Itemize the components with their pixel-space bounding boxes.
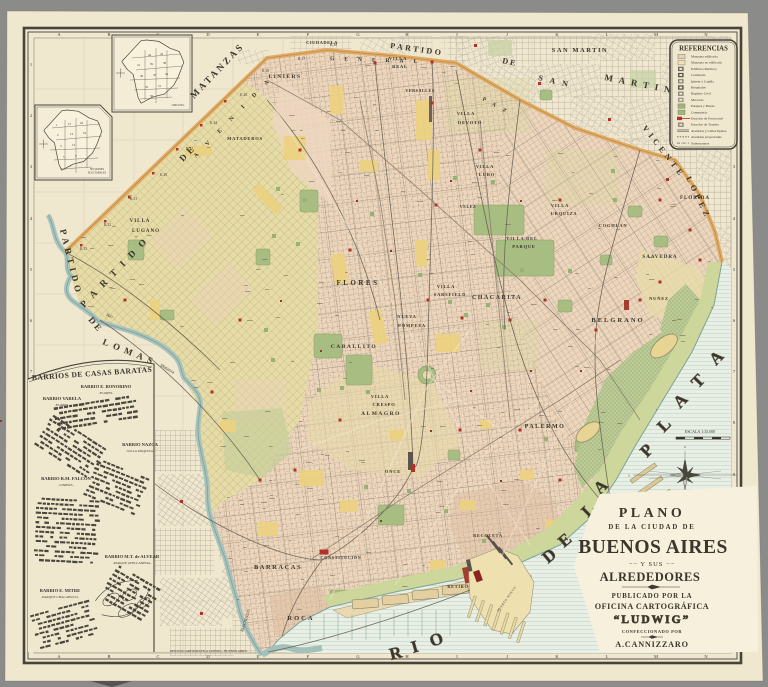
svg-text:VILLA: VILLA — [389, 56, 407, 61]
svg-text:-VILLA URQUIZA-: -VILLA URQUIZA- — [126, 449, 154, 453]
svg-text:C: C — [156, 654, 159, 659]
svg-text:VERSALLES: VERSALLES — [405, 88, 434, 93]
svg-text:K.33: K.33 — [80, 247, 87, 251]
svg-text:BARRIO E. MITRE: BARRIO E. MITRE — [40, 588, 80, 593]
svg-text:COGHLAN: COGHLAN — [599, 223, 628, 228]
svg-text:1: 1 — [30, 62, 32, 67]
svg-text:n: n — [740, 474, 742, 478]
svg-text:REAL: REAL — [392, 64, 408, 69]
svg-text:LINIERS: LINIERS — [268, 74, 301, 80]
svg-text:ELECTORALES: ELECTORALES — [88, 172, 107, 175]
svg-text:36: 36 — [140, 74, 144, 78]
svg-text:ALMAGRO: ALMAGRO — [361, 411, 401, 417]
svg-text:K.32: K.32 — [104, 223, 111, 227]
svg-text:18: 18 — [80, 121, 84, 125]
svg-text:CHACARITA: CHACARITA — [472, 295, 522, 301]
svg-text:VILLA: VILLA — [437, 284, 455, 289]
svg-text:PALERMO: PALERMO — [525, 424, 566, 430]
svg-text:44: 44 — [148, 53, 152, 57]
svg-text:MATADEROS: MATADEROS — [227, 136, 263, 141]
svg-text:Cementerio: Cementerio — [691, 110, 708, 114]
svg-text:FLORES: FLORES — [336, 279, 379, 287]
svg-text:VILLA: VILLA — [551, 203, 569, 208]
svg-text:A.CANNIZZARO: A.CANNIZZARO — [615, 640, 689, 649]
svg-text:VILLA: VILLA — [371, 394, 389, 399]
svg-text:CIRCUNS.: CIRCUNS. — [172, 104, 185, 107]
svg-text:PARQUE: PARQUE — [512, 244, 535, 249]
svg-text:Avenidas proyectadas: Avenidas proyectadas — [691, 135, 722, 139]
svg-text:19: 19 — [83, 131, 87, 135]
svg-text:41: 41 — [137, 63, 141, 67]
svg-text:BARRIO NAZCA: BARRIO NAZCA — [122, 442, 159, 447]
svg-text:Edificios Publicos: Edificios Publicos — [691, 67, 717, 71]
svg-text:34: 34 — [165, 72, 169, 76]
svg-text:Estacion de Tranvia: Estacion de Tranvia — [691, 123, 719, 127]
svg-text:DEVOTO: DEVOTO — [458, 120, 482, 125]
svg-text:K.24: K.24 — [210, 121, 217, 125]
svg-text:M: M — [654, 654, 658, 659]
svg-text:Parques y Plazas: Parques y Plazas — [691, 104, 715, 108]
svg-text:BARRIO M.T. de ALVEAR: BARRIO M.T. de ALVEAR — [105, 554, 160, 559]
svg-text:VILLA DEL: VILLA DEL — [506, 236, 538, 241]
svg-text:-LINIERS-: -LINIERS- — [58, 483, 73, 487]
svg-text:15: 15 — [68, 122, 72, 126]
svg-text:Manzana edificada: Manzana edificada — [691, 55, 718, 59]
svg-text:PLANO: PLANO — [619, 506, 686, 521]
svg-text:39: 39 — [150, 62, 154, 66]
svg-text:OFICINA CARTOGRÁFICA: OFICINA CARTOGRÁFICA — [595, 601, 709, 611]
svg-text:ESCALA 1:35.000: ESCALA 1:35.000 — [685, 429, 715, 434]
svg-text:2: 2 — [30, 113, 32, 118]
svg-text:VILLA: VILLA — [130, 219, 151, 224]
svg-text:30: 30 — [150, 94, 154, 98]
svg-text:DE LA CIUDAD DE: DE LA CIUDAD DE — [608, 524, 695, 531]
svg-text:E: E — [257, 32, 260, 37]
svg-text:RETIRO: RETIRO — [447, 584, 468, 589]
svg-text:“LUDWIG”: “LUDWIG” — [614, 614, 691, 626]
svg-text:RECOLETA: RECOLETA — [473, 533, 503, 538]
svg-text:NUÑEZ: NUÑEZ — [649, 296, 669, 301]
svg-text:REFERENCIAS: REFERENCIAS — [679, 46, 728, 53]
svg-text:Estacion de Ferrocarril: Estacion de Ferrocarril — [691, 117, 723, 121]
svg-text:K.18: K.18 — [262, 69, 269, 73]
svg-text:BARRIO VARELA: BARRIO VARELA — [43, 396, 82, 401]
svg-text:SAN MARTIN: SAN MARTIN — [552, 47, 608, 54]
svg-text:BARRIO E. BONORINO: BARRIO E. BONORINO — [81, 384, 132, 389]
svg-text:-FLORES-: -FLORES- — [55, 403, 70, 407]
svg-text:o: o — [684, 445, 686, 449]
svg-text:−− Y SUS −−: −− Y SUS −− — [629, 561, 676, 568]
svg-text:CRESPO: CRESPO — [372, 402, 395, 407]
svg-text:Comisaria: Comisaria — [691, 73, 706, 77]
svg-text:NUEVA: NUEVA — [397, 314, 416, 319]
svg-text:Hospitales: Hospitales — [691, 86, 706, 90]
svg-text:Subterraneos: Subterraneos — [691, 141, 710, 145]
svg-text:L: L — [606, 654, 609, 659]
svg-text:-FLORES-: -FLORES- — [99, 391, 114, 395]
svg-text:CONSTITUCION: CONSTITUCION — [321, 555, 362, 560]
svg-text:URQUIZA: URQUIZA — [551, 211, 578, 216]
svg-text:BARRIO R.M. FALCON: BARRIO R.M. FALCON — [41, 476, 91, 481]
svg-text:FLORIDA: FLORIDA — [680, 196, 710, 201]
svg-text:14: 14 — [70, 132, 74, 136]
svg-text:K.20: K.20 — [240, 93, 247, 97]
svg-text:K.16: K.16 — [330, 43, 337, 47]
svg-text:31: 31 — [158, 84, 162, 88]
svg-text:SAAVEDRA: SAAVEDRA — [642, 255, 677, 260]
svg-text:ROCA: ROCA — [287, 615, 314, 622]
svg-text:K.29: K.29 — [160, 173, 167, 177]
svg-text:PUBLICADO POR LA: PUBLICADO POR LA — [612, 593, 693, 600]
svg-text:38: 38 — [163, 61, 167, 65]
svg-text:Iglesia o Capilla: Iglesia o Capilla — [691, 79, 714, 83]
svg-text:ALREDEDORES: ALREDEDORES — [600, 570, 701, 584]
svg-text:13: 13 — [72, 143, 76, 147]
svg-text:VELEZ: VELEZ — [460, 204, 477, 209]
svg-text:43: 43 — [160, 52, 164, 56]
svg-text:LUGANO: LUGANO — [132, 229, 160, 234]
svg-text:POMPEYA: POMPEYA — [398, 323, 426, 328]
svg-text:BELGRANO: BELGRANO — [591, 317, 644, 324]
svg-text:Mercado: Mercado — [691, 98, 704, 102]
svg-text:BUENOS AIRES: BUENOS AIRES — [578, 537, 728, 558]
svg-text:K.31: K.31 — [130, 197, 137, 201]
svg-text:SARSFIELD: SARSFIELD — [434, 292, 466, 297]
svg-text:BARRACAS: BARRACAS — [254, 564, 302, 571]
svg-text:K.17: K.17 — [298, 57, 305, 61]
svg-text:J: J — [506, 654, 508, 659]
svg-text:32: 32 — [145, 85, 149, 89]
svg-text:B: B — [107, 32, 110, 37]
svg-text:35: 35 — [153, 73, 157, 77]
svg-text:-PARQUE AVELLANEDA-: -PARQUE AVELLANEDA- — [113, 561, 152, 565]
svg-text:VILLA: VILLA — [476, 164, 494, 169]
svg-text:K.27: K.27 — [186, 147, 193, 151]
svg-text:B: B — [107, 654, 110, 659]
svg-text:VILLA: VILLA — [457, 111, 475, 116]
svg-text:OFICINA CARTOGRAFICA LUDWIG -: OFICINA CARTOGRAFICA LUDWIG - BUENOS AIR… — [170, 649, 247, 653]
svg-text:Avenidas y Calles Ppales.: Avenidas y Calles Ppales. — [691, 129, 727, 133]
svg-text:Manzana no edificada: Manzana no edificada — [691, 61, 722, 65]
svg-text:-PARQUE CHACABUCO-: -PARQUE CHACABUCO- — [41, 595, 79, 599]
svg-text:CONFECCIONADO POR: CONFECCIONADO POR — [622, 629, 683, 634]
svg-text:Registro Civil: Registro Civil — [691, 92, 711, 96]
svg-text:CABALLITO: CABALLITO — [331, 344, 377, 350]
svg-text:ONCE: ONCE — [385, 469, 401, 474]
svg-text:LURO: LURO — [479, 172, 495, 177]
